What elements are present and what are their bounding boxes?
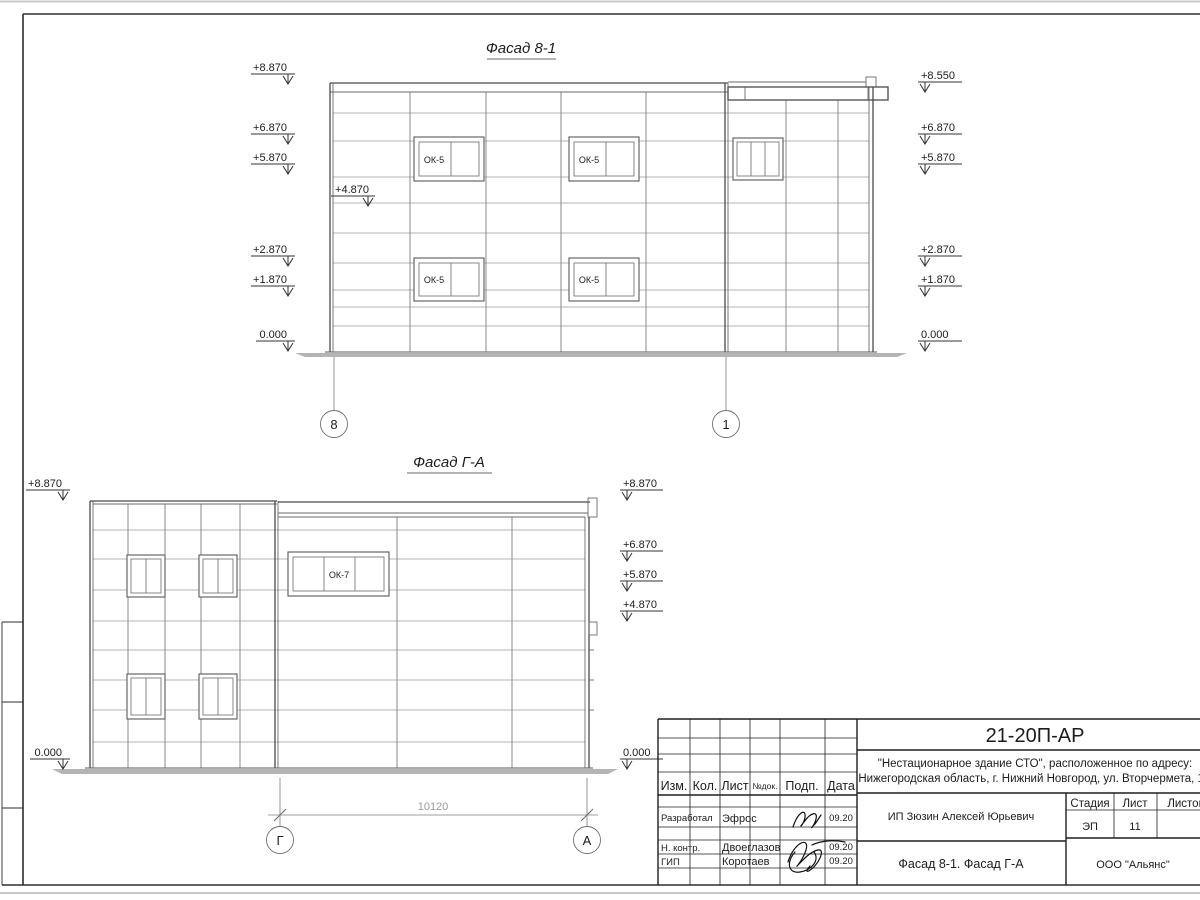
facade-g-a-title: Фасад Г-А xyxy=(413,454,485,471)
window-small-top-2 xyxy=(199,555,237,597)
elevation-label: +8.870 xyxy=(623,478,657,490)
sheet-title: Фасад 8-1. Фасад Г-А xyxy=(898,857,1024,871)
elevation-label: +5.870 xyxy=(253,152,287,164)
signoff-role: ГИП xyxy=(661,857,680,868)
elevation-label: +1.870 xyxy=(921,274,955,286)
signoff-name: Коротаев xyxy=(722,856,770,868)
grid-axis-8: 8 xyxy=(321,357,348,438)
signoff-date: 09.20 xyxy=(829,856,853,867)
signoff-role: Разработал xyxy=(661,813,713,824)
company-name: ООО "Альянс" xyxy=(1096,859,1170,871)
stage-value: ЭП xyxy=(1082,821,1098,833)
facade-8-1-elevations-right: +8.550 +6.870 +5.870 +2.870 +1.870 0.000 xyxy=(918,70,962,351)
window-ok5-bottom-mid: ОК-5 xyxy=(569,258,639,301)
signoff-role: Н. контр. xyxy=(661,843,700,854)
facade-g-a-windows: ОК-7 xyxy=(127,552,389,719)
window-small-bottom-2 xyxy=(199,674,237,719)
facade-drawing-svg: Фасад 8-1 xyxy=(0,0,1200,900)
window-small-bottom-1 xyxy=(127,674,165,719)
stage-label: Стадия xyxy=(1070,798,1109,810)
elevation-label: +6.870 xyxy=(253,122,287,134)
grid-label-a: А xyxy=(583,833,592,848)
elevation-label: 0.000 xyxy=(259,329,287,341)
window-ok5-bottom-left: ОК-5 xyxy=(414,258,484,301)
grid-axis-1: 1 xyxy=(713,357,740,438)
elevation-label: 0.000 xyxy=(921,329,949,341)
elevation-label: +5.870 xyxy=(921,152,955,164)
facade-g-a-ground xyxy=(52,768,618,774)
elevation-label: +1.870 xyxy=(253,274,287,286)
project-line2: Нижегородская область, г. Нижний Новгоро… xyxy=(858,773,1200,785)
sheets-label: Листов xyxy=(1167,798,1200,810)
facade-g-a-elevations-left: +8.870 0.000 xyxy=(26,478,70,769)
signoff-name: Двоеглазов xyxy=(722,842,781,854)
elevation-label: +8.870 xyxy=(28,478,62,490)
grid-label-1: 1 xyxy=(722,417,729,432)
col-izm: Изм. xyxy=(661,779,688,793)
signoff-name: Эфрос xyxy=(722,813,757,825)
project-line1: "Нестационарное здание СТО", расположенн… xyxy=(878,758,1193,770)
elevation-label: 0.000 xyxy=(623,747,651,759)
canopy xyxy=(728,87,888,100)
elevation-label: +8.870 xyxy=(253,62,287,74)
facade-g-a-outline xyxy=(90,498,597,768)
facade-8-1: Фасад 8-1 xyxy=(251,40,962,438)
grid-axis-a: А xyxy=(574,827,601,854)
signoff-date: 09.20 xyxy=(829,842,853,853)
col-kol: Кол. xyxy=(693,779,718,793)
signoff-date: 09.20 xyxy=(829,813,853,824)
elevation-label: +8.550 xyxy=(921,70,955,82)
facade-8-1-outline xyxy=(330,77,888,352)
grid-label-8: 8 xyxy=(330,417,337,432)
facade-g-a: Фасад Г-А xyxy=(26,454,663,854)
elevation-label: +4.870 xyxy=(623,599,657,611)
project-code: 21-20П-АР xyxy=(986,725,1085,747)
elevation-label: +2.870 xyxy=(921,244,955,256)
facade-8-1-title: Фасад 8-1 xyxy=(486,40,556,57)
window-ok5-top-mid: ОК-5 xyxy=(569,137,639,181)
elevation-label: +5.870 xyxy=(623,569,657,581)
col-podp: Подп. xyxy=(785,779,818,793)
elevation-label: +2.870 xyxy=(253,244,287,256)
facade-g-a-elevations-right: +8.870 +6.870 +5.870 +4.870 0.000 xyxy=(620,478,663,769)
window-label: ОК-5 xyxy=(579,275,599,285)
window-three-pane xyxy=(733,138,783,180)
col-ndok: №док. xyxy=(753,781,778,791)
elevation-label: +6.870 xyxy=(921,122,955,134)
sheet-number: 11 xyxy=(1129,821,1140,833)
facade-8-1-ground xyxy=(295,352,907,357)
grid-label-g: Г xyxy=(276,833,283,848)
elevation-label: 0.000 xyxy=(34,747,62,759)
facade-8-1-elevations-left: +8.870 +6.870 +5.870 +2.870 +1.870 0.000… xyxy=(251,62,375,351)
dimension-10120: 10120 xyxy=(268,778,598,826)
client-name: ИП Зюзин Алексей Юрьевич xyxy=(888,811,1035,823)
elevation-label: +6.870 xyxy=(623,539,657,551)
elevation-label: +4.870 xyxy=(335,184,369,196)
grid-axis-g: Г xyxy=(267,827,294,854)
drawing-sheet: Фасад 8-1 xyxy=(0,0,1200,900)
window-ok7: ОК-7 xyxy=(288,552,389,596)
window-label: ОК-5 xyxy=(579,155,599,165)
signature-1 xyxy=(793,812,821,827)
dimension-value: 10120 xyxy=(418,801,449,813)
window-label: ОК-7 xyxy=(329,570,349,580)
window-ok5-top-left: ОК-5 xyxy=(414,137,484,181)
sheet-label: Лист xyxy=(1123,798,1149,810)
facade-8-1-mullions xyxy=(410,92,838,352)
window-label: ОК-5 xyxy=(424,275,444,285)
col-list: Лист xyxy=(721,779,748,793)
window-label: ОК-5 xyxy=(424,155,444,165)
facade-g-a-mullions xyxy=(128,504,512,768)
title-block: Изм. Кол. Лист №док. Подп. Дата Разработ… xyxy=(658,719,1200,885)
window-small-top-1 xyxy=(127,555,165,597)
col-data: Дата xyxy=(827,779,855,793)
